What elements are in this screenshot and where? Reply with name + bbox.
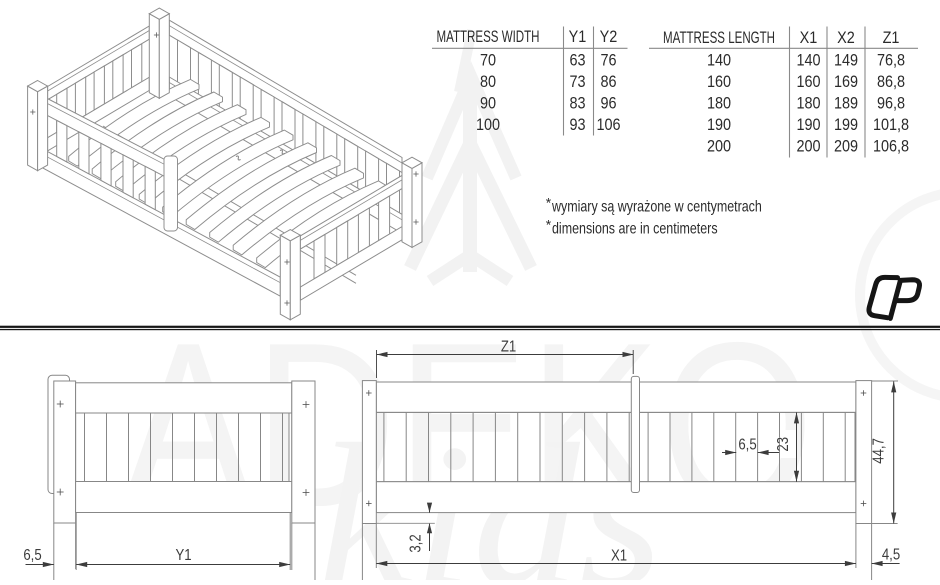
svg-text:4,5: 4,5 — [882, 547, 900, 564]
svg-text:3,2: 3,2 — [408, 534, 425, 552]
svg-text:200: 200 — [796, 137, 820, 155]
svg-text:23: 23 — [775, 437, 792, 452]
svg-text:dimensions are in centimeters: dimensions are in centimeters — [552, 220, 718, 238]
svg-text:6,5: 6,5 — [23, 547, 41, 564]
svg-text:*: * — [546, 195, 552, 211]
svg-text:101,8: 101,8 — [873, 116, 909, 134]
svg-text:140: 140 — [796, 51, 820, 69]
svg-text:76,8: 76,8 — [877, 51, 905, 69]
svg-text:44,7: 44,7 — [870, 438, 887, 464]
svg-text:Y1: Y1 — [175, 547, 191, 564]
svg-text:169: 169 — [834, 73, 858, 91]
svg-text:80: 80 — [480, 73, 496, 91]
svg-text:86,8: 86,8 — [877, 73, 905, 91]
svg-text:93: 93 — [569, 116, 585, 134]
svg-text:160: 160 — [796, 73, 820, 91]
svg-text:63: 63 — [569, 51, 585, 69]
svg-text:wymiary są wyrażone w centymet: wymiary są wyrażone w centymetrach — [551, 198, 762, 216]
svg-text:*: * — [546, 217, 552, 233]
svg-text:180: 180 — [796, 94, 820, 112]
svg-text:X1: X1 — [800, 29, 818, 47]
svg-text:MATTRESS LENGTH: MATTRESS LENGTH — [663, 29, 775, 48]
svg-text:160: 160 — [707, 73, 731, 91]
svg-text:149: 149 — [834, 51, 858, 69]
svg-text:106: 106 — [596, 116, 620, 134]
svg-text:86: 86 — [600, 73, 616, 91]
svg-text:83: 83 — [569, 94, 585, 112]
svg-text:90: 90 — [480, 94, 496, 112]
svg-text:106,8: 106,8 — [873, 137, 909, 155]
svg-text:140: 140 — [707, 51, 731, 69]
svg-text:100: 100 — [476, 116, 500, 134]
svg-text:76: 76 — [600, 51, 616, 69]
svg-text:73: 73 — [569, 73, 585, 91]
svg-text:190: 190 — [796, 116, 820, 134]
svg-text:96,8: 96,8 — [877, 94, 905, 112]
svg-text:199: 199 — [834, 116, 858, 134]
svg-text:70: 70 — [480, 51, 496, 69]
svg-text:96: 96 — [600, 94, 616, 112]
svg-text:Z1: Z1 — [883, 29, 900, 47]
svg-text:180: 180 — [707, 94, 731, 112]
svg-text:6,5: 6,5 — [738, 437, 756, 454]
svg-text:Y2: Y2 — [600, 28, 618, 46]
svg-text:X2: X2 — [837, 29, 855, 47]
svg-text:X1: X1 — [611, 548, 627, 565]
svg-text:190: 190 — [707, 116, 731, 134]
svg-text:189: 189 — [834, 94, 858, 112]
svg-text:209: 209 — [834, 137, 858, 155]
svg-text:200: 200 — [707, 137, 731, 155]
svg-text:Z1: Z1 — [501, 339, 516, 356]
svg-text:Y1: Y1 — [569, 28, 587, 46]
svg-text:MATTRESS WIDTH: MATTRESS WIDTH — [436, 28, 539, 47]
